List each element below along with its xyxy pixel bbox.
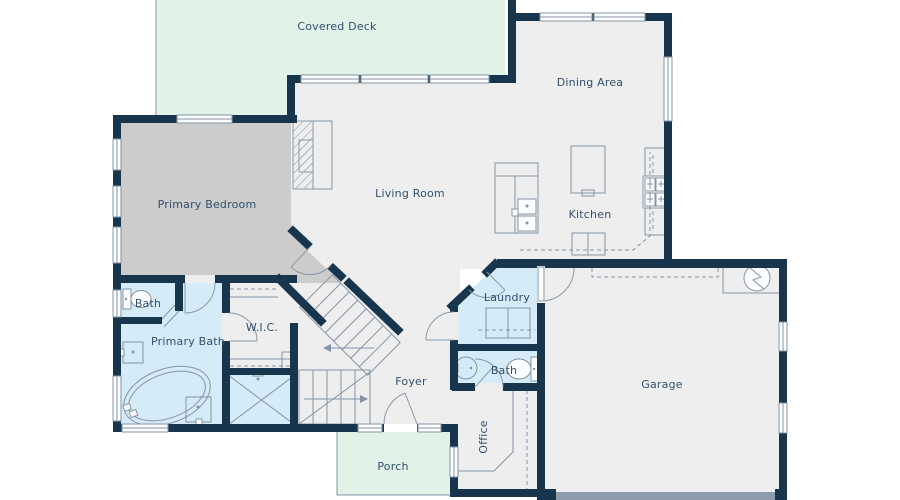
label-garage: Garage (641, 378, 683, 391)
label-covered-deck: Covered Deck (297, 20, 377, 33)
label-living-room: Living Room (375, 187, 445, 200)
window-icon (113, 227, 121, 263)
room-living (291, 79, 516, 269)
window-icon (113, 290, 121, 317)
label-hall-bath: Bath (491, 364, 517, 377)
window-icon (358, 424, 382, 432)
window-icon (418, 424, 441, 432)
window-icon (430, 75, 489, 83)
window-icon (113, 186, 121, 217)
label-laundry: Laundry (484, 291, 531, 304)
window-icon (177, 115, 232, 123)
window-icon (450, 447, 458, 477)
label-primary-bath: Primary Bath (151, 335, 225, 348)
window-icon (664, 57, 672, 121)
label-office: Office (477, 420, 490, 454)
label-porch: Porch (377, 460, 408, 473)
room-floors (121, 0, 781, 495)
label-wic: W.I.C. (246, 321, 278, 334)
label-dining-area: Dining Area (557, 76, 624, 89)
window-icon (594, 13, 645, 21)
room-laundry (456, 266, 537, 346)
label-foyer: Foyer (395, 375, 427, 388)
window-icon (113, 376, 121, 421)
floor-plan-svg: Covered Deck Dining Area Primary Bedroom… (0, 0, 900, 500)
garage-door-icon (556, 492, 775, 500)
label-kitchen: Kitchen (569, 208, 612, 221)
window-icon (301, 75, 359, 83)
window-icon (113, 139, 121, 170)
window-icon (122, 424, 168, 432)
label-primary-bedroom: Primary Bedroom (158, 198, 257, 211)
floor-plan: Covered Deck Dining Area Primary Bedroom… (0, 0, 900, 500)
window-icon (779, 403, 787, 433)
window-icon (361, 75, 428, 83)
window-icon (540, 13, 592, 21)
window-icon (779, 322, 787, 351)
label-bath-primary-wc: Bath (135, 297, 161, 310)
